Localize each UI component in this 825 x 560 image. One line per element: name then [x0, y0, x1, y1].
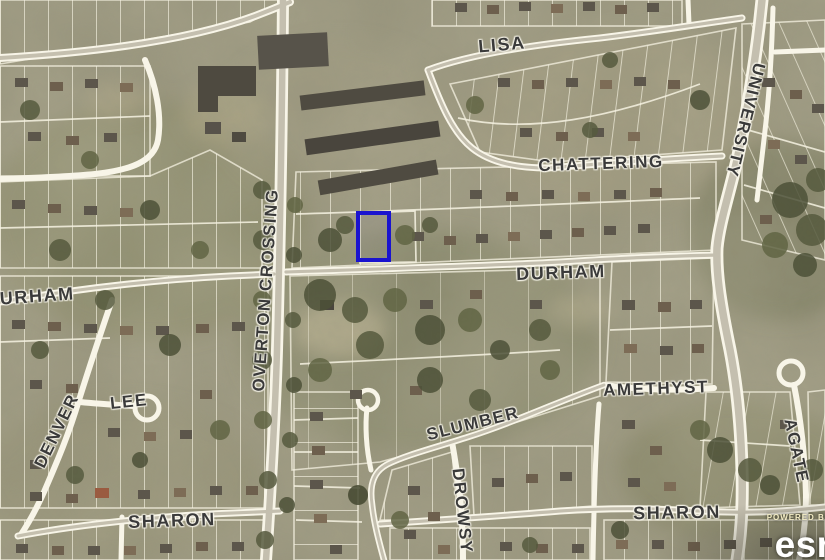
esri-logo[interactable]: esri — [775, 524, 825, 560]
map-attribution: POWERED BY esri — [655, 498, 825, 560]
aerial-map-canvas[interactable] — [0, 0, 825, 560]
aerial-parcel-map-view: LISA CHATTERING UNIVERSITY OVERTON CROSS… — [0, 0, 825, 560]
selected-parcel-outline[interactable] — [356, 211, 391, 262]
powered-by-text: POWERED BY — [767, 513, 825, 522]
